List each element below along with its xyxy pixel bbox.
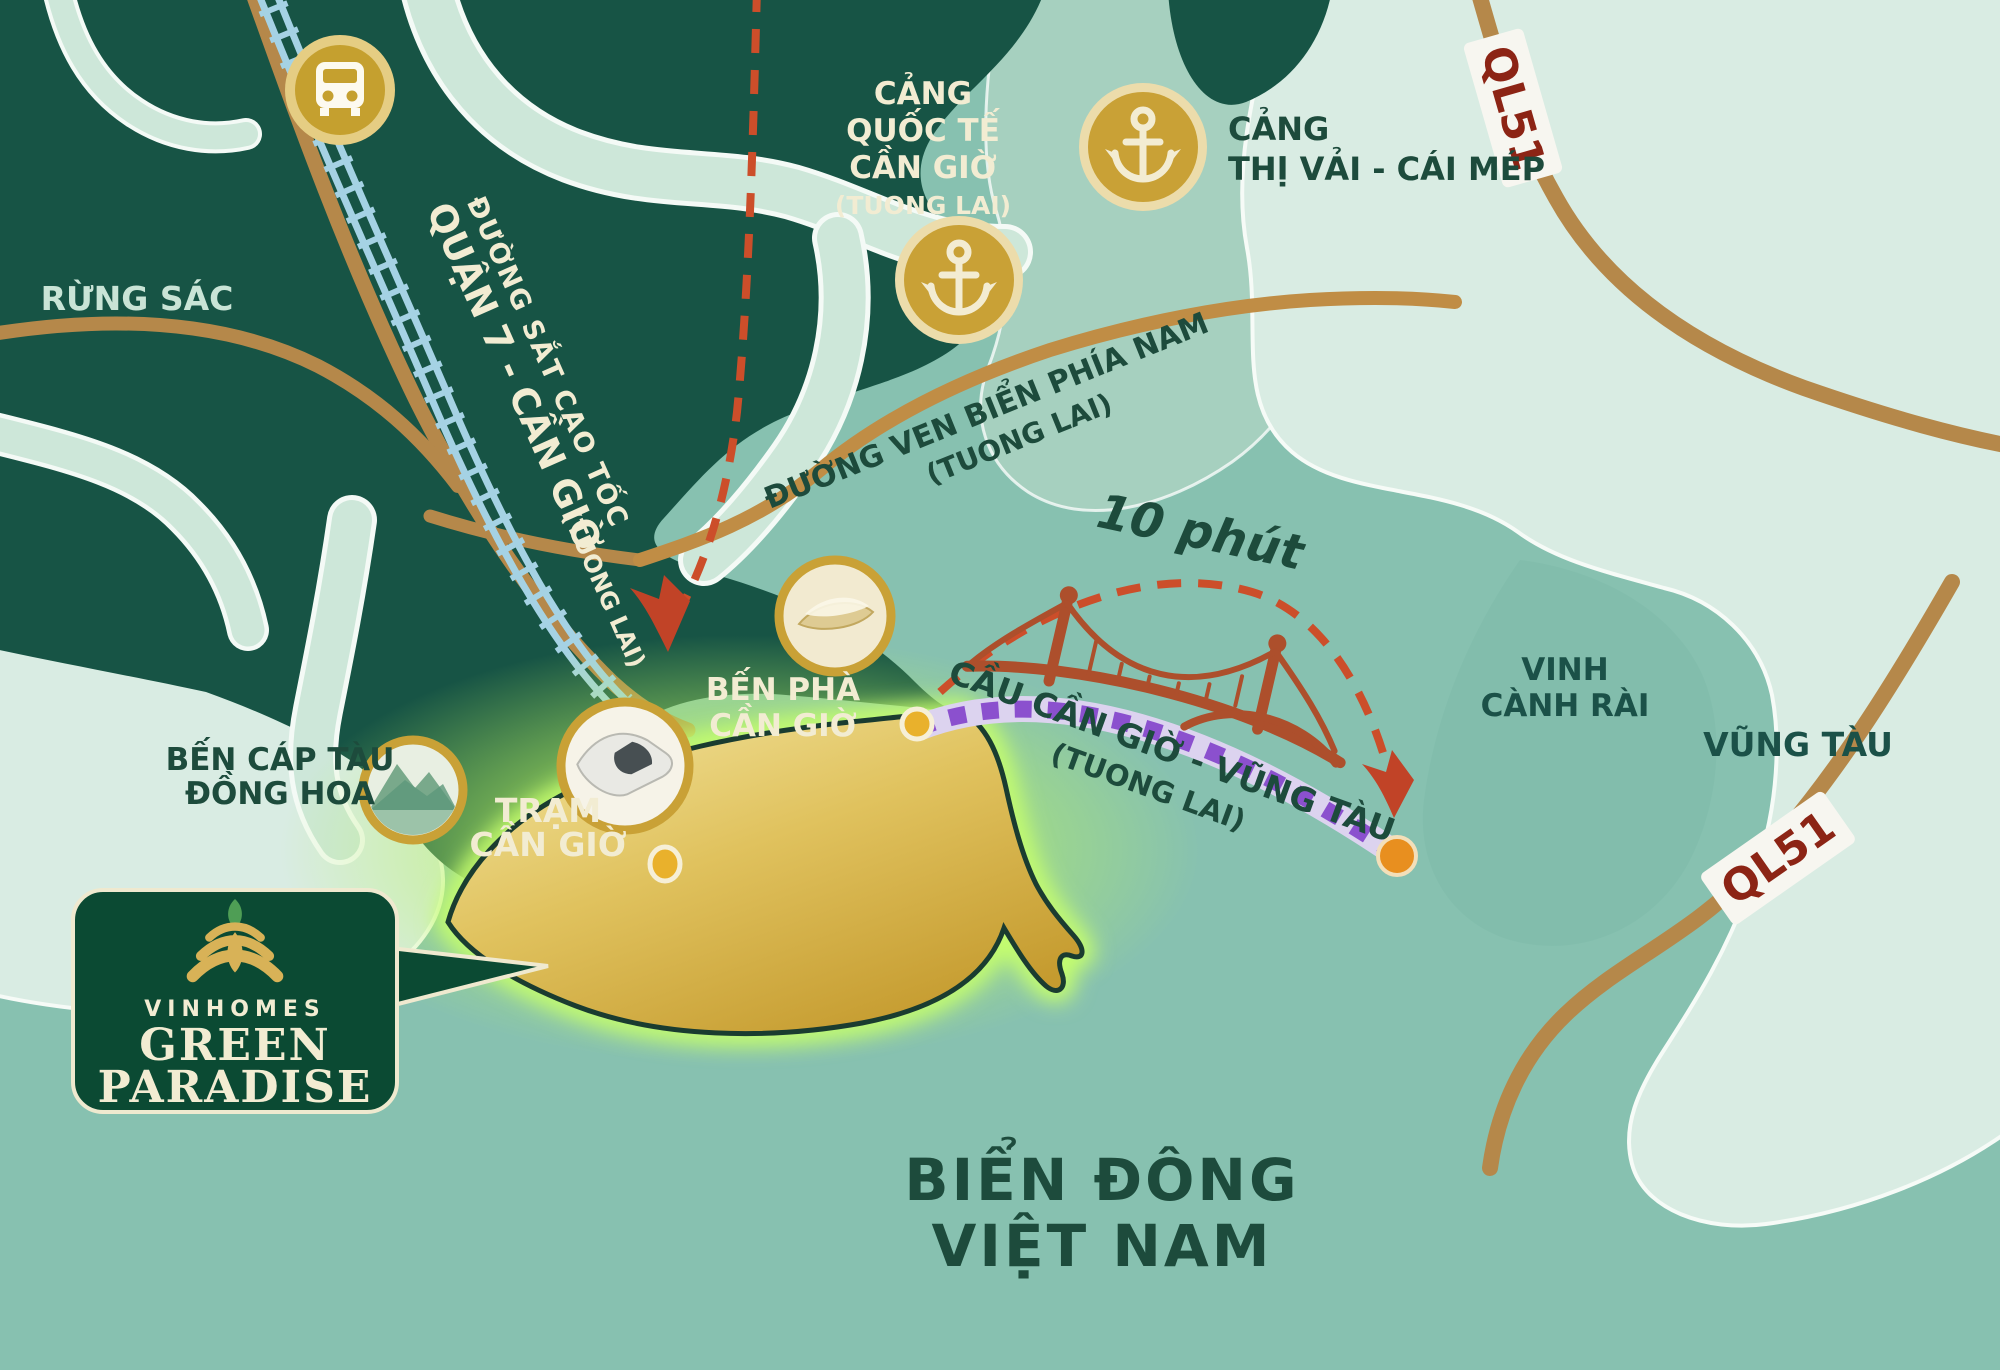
port-thivai-line1: CẢNG [1228,107,1329,148]
label-vung-tau: VŨNG TÀU [1703,724,1893,764]
can-gio-location-map: QL51 QL51 RỪNG SÁC ĐƯỜNG SẮT CAO TỐC QUẬ… [0,0,2000,1370]
port-intl-line2: QUỐC TẾ [846,108,1001,149]
port-intl-future: (TUONG LAI) [835,191,1011,220]
bay-line2: CÀNH RÀI [1481,688,1650,724]
train-line-icon [285,35,395,145]
port-intl-anchor-icon [895,216,1023,344]
label-cable-port: BẾN CÁP TÀU ĐỒNG HOA [166,738,395,812]
sea-line2: VIỆT NAM [932,1211,1273,1280]
badge-name2: PARADISE [98,1062,373,1113]
ferry-line2: CẦN GIỜ [709,704,857,744]
badge-brand: VINHOMES [144,997,326,1022]
label-rung-sac: RỪNG SÁC [41,278,234,318]
train-station-line2: CẦN GIỜ [469,820,626,864]
port-intl-line3: CẦN GIỜ [849,146,997,186]
bay-line1: VINH [1521,652,1608,688]
cable-port-line2: ĐỒNG HOA [185,771,375,812]
cable-port-line1: BẾN CÁP TÀU [166,738,395,778]
sea-line1: BIỂN ĐÔNG [904,1136,1299,1214]
label-ferry: BẾN PHÀ CẦN GIỜ [706,668,860,744]
port-intl-line1: CẢNG [874,73,972,112]
port-thivai-line2: THỊ VẢI - CÁI MÉP [1228,147,1545,188]
marker-dot-island [902,709,932,739]
ferry-line1: BẾN PHÀ [706,668,860,708]
label-sea: BIỂN ĐÔNG VIỆT NAM [904,1136,1299,1280]
marker-dot-station [650,847,680,881]
port-thivai-anchor-icon [1079,83,1207,211]
map-stage: QL51 QL51 RỪNG SÁC ĐƯỜNG SẮT CAO TỐC QUẬ… [0,0,2000,1370]
ferry-icon [779,560,891,672]
